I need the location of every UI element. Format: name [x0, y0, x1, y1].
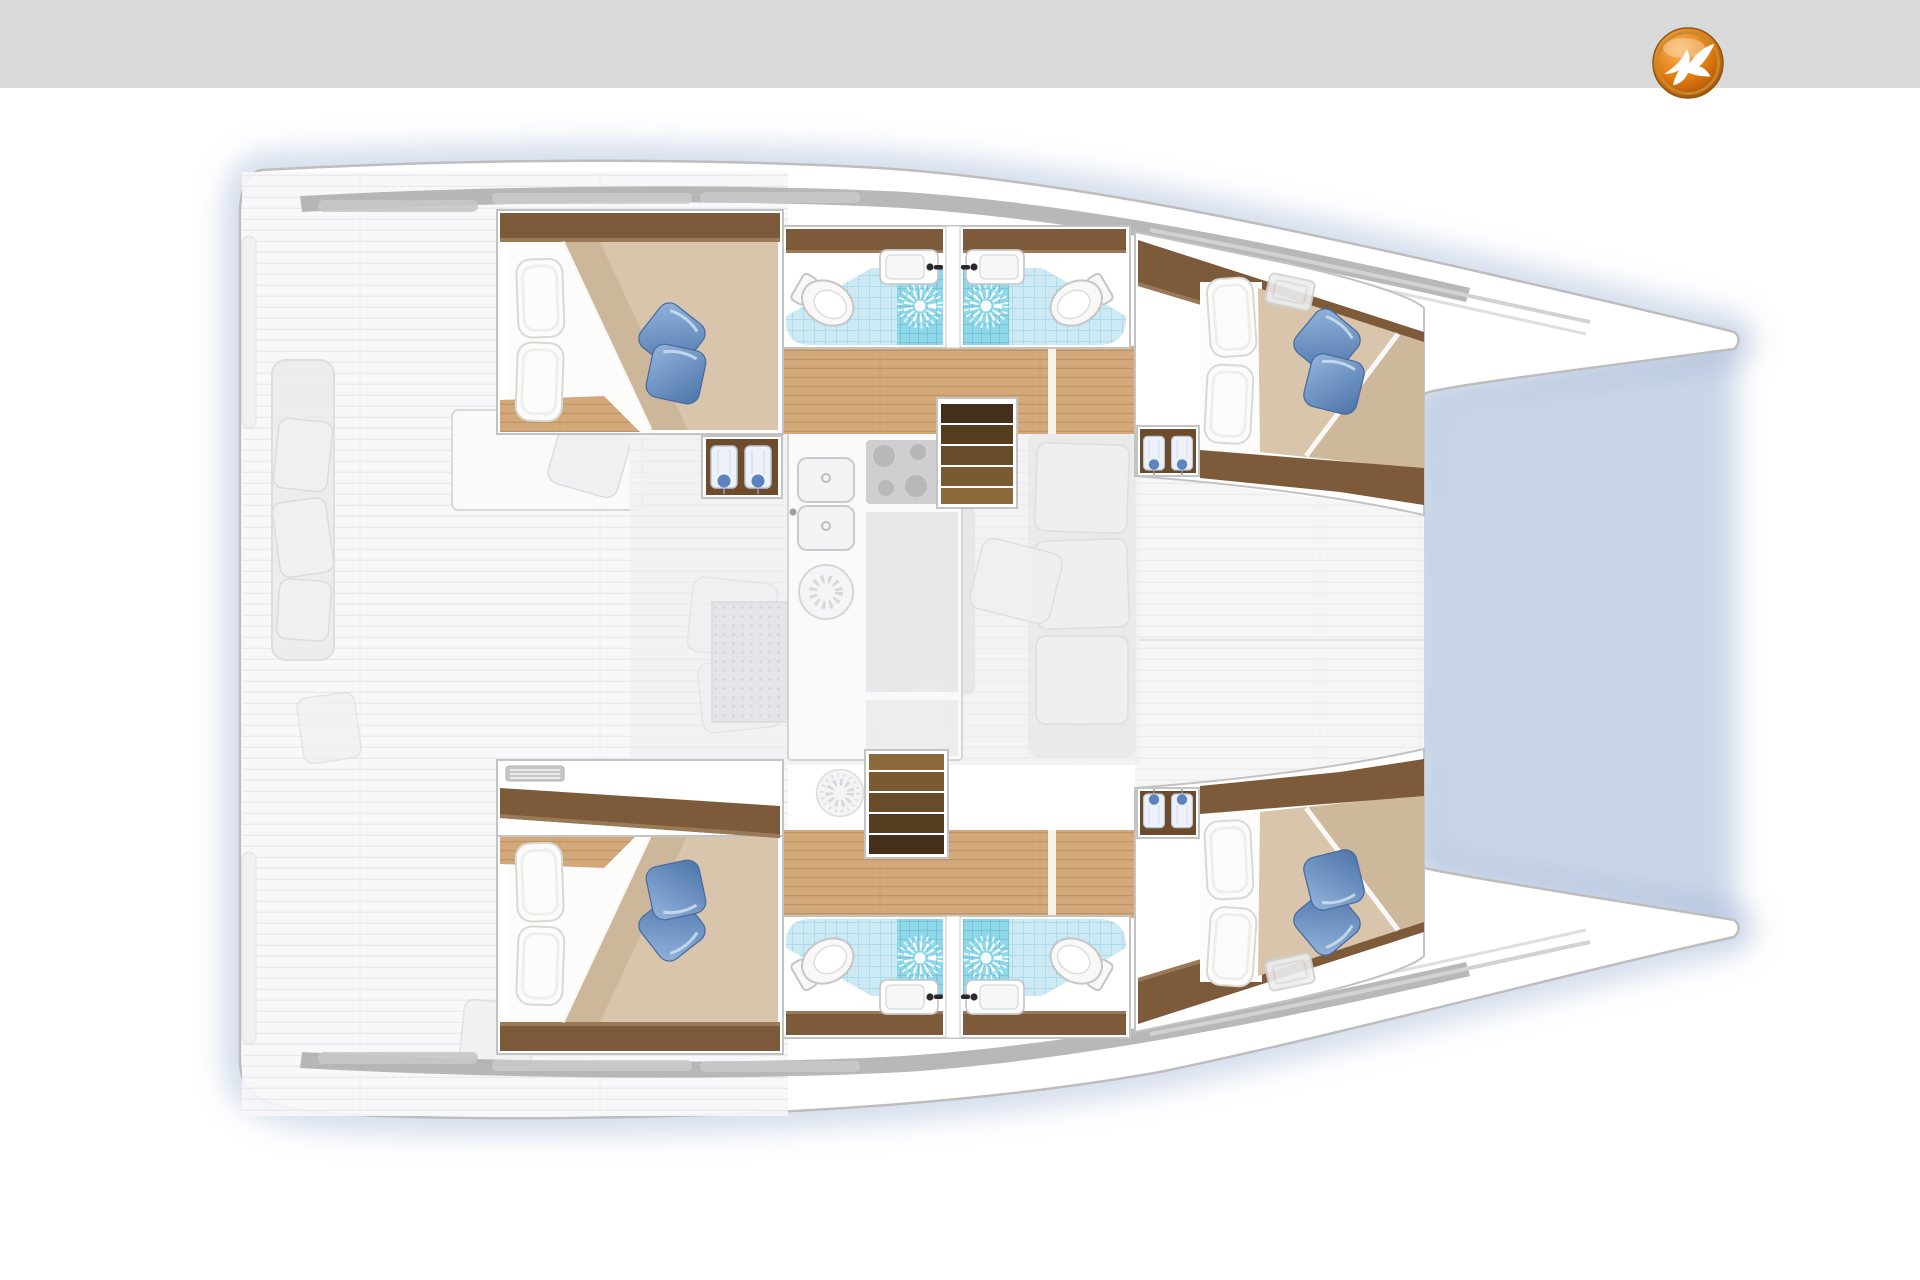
hull-window-band: [318, 200, 478, 212]
foredeck-faded: [1135, 474, 1424, 806]
bathroom-aft: [786, 229, 943, 345]
cabin-aft-starboard-headboard: [497, 760, 783, 838]
bathroom-fore: [961, 229, 1126, 345]
floorplan-canvas: [0, 0, 1920, 1280]
boat-layout-page: [0, 0, 1920, 1280]
header-bar: [0, 0, 1920, 88]
bathrooms: [783, 226, 1130, 348]
cabin-aft: [497, 210, 783, 434]
hanging-locker-aft: [702, 436, 782, 498]
hanging-locker-fore: [1137, 426, 1199, 476]
galley-fridge: [866, 512, 958, 692]
companionway-stairs-starboard: [865, 750, 948, 858]
brand-logo: [1653, 28, 1723, 98]
deck-bench-pillows: [271, 417, 335, 641]
salon-rug: [712, 602, 792, 722]
galley-faded: [788, 432, 962, 760]
companionway-stairs-port: [937, 398, 1017, 508]
